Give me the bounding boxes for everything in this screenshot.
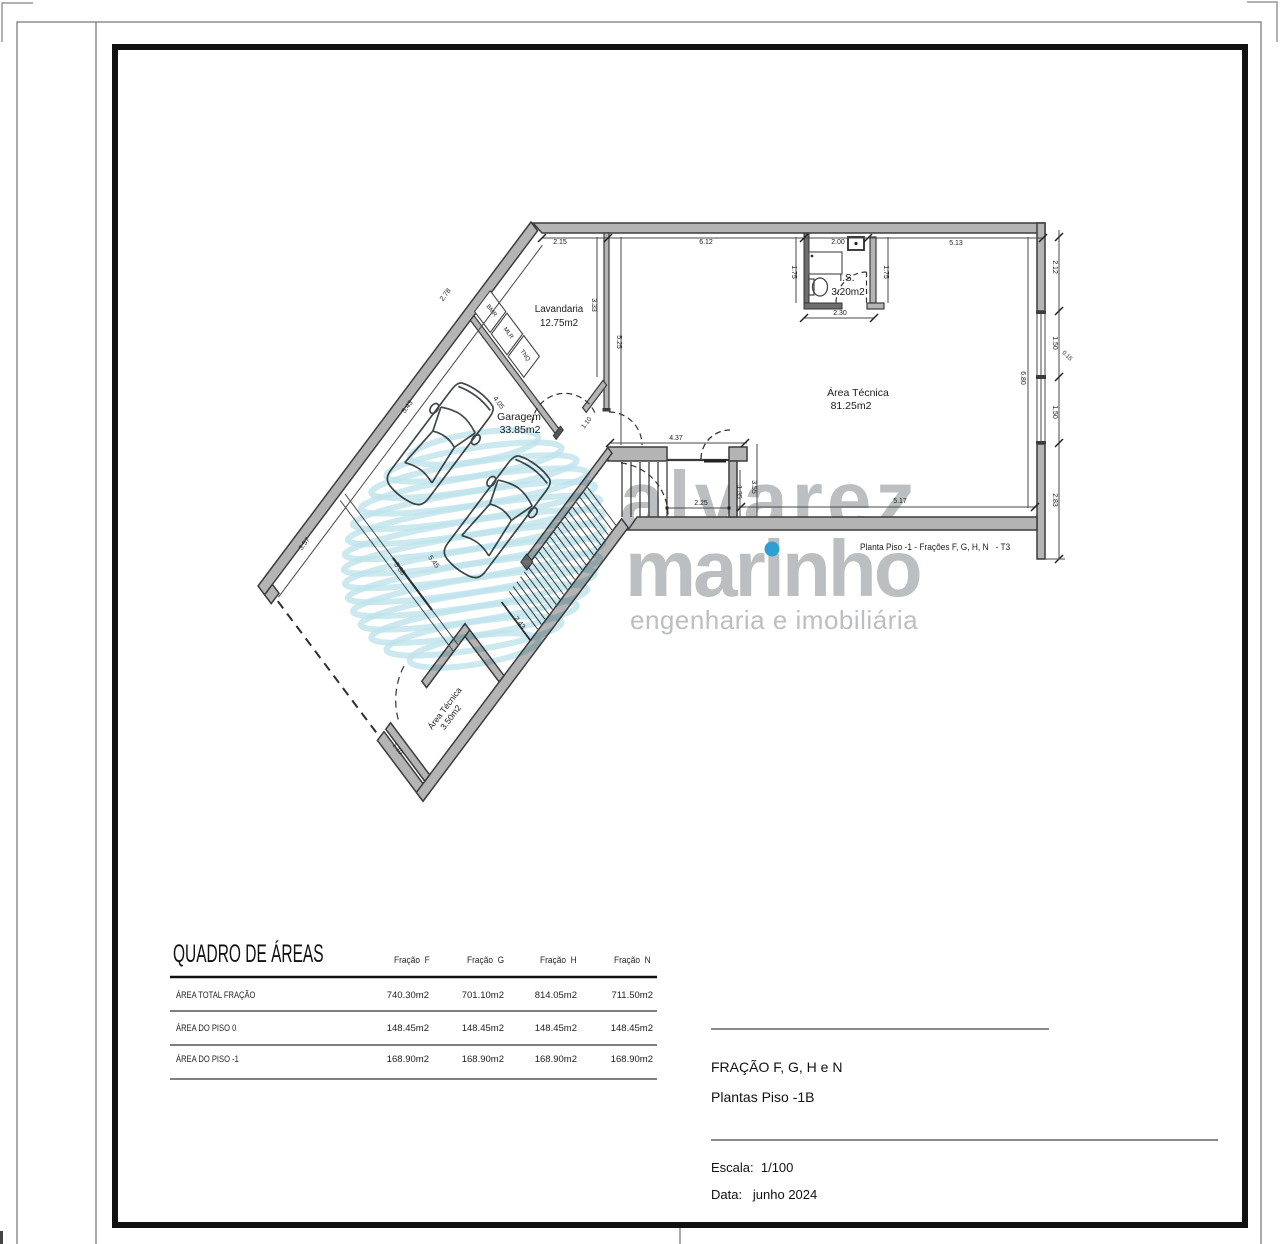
svg-text:2.83: 2.83 [1051, 493, 1058, 507]
svg-text:3.33: 3.33 [590, 298, 597, 312]
svg-text:Fração F: Fração F [394, 955, 430, 966]
svg-text:701.10m2: 701.10m2 [462, 990, 504, 1001]
svg-text:6.12: 6.12 [699, 239, 713, 246]
svg-text:Planta Piso -1 - Frações F, G,: Planta Piso -1 - Frações F, G, H, N - T3 [860, 542, 1010, 553]
svg-text:740.30m2: 740.30m2 [387, 990, 429, 1001]
svg-text:Garagem: Garagem [497, 411, 541, 423]
svg-text:1.50: 1.50 [1051, 336, 1058, 350]
svg-text:Data: junho 2024: Data: junho 2024 [711, 1187, 817, 1202]
svg-text:I.S.: I.S. [839, 273, 854, 284]
svg-text:6.80: 6.80 [1019, 371, 1026, 385]
svg-text:Plantas Piso -1B: Plantas Piso -1B [711, 1089, 815, 1105]
svg-text:148.45m2: 148.45m2 [387, 1023, 429, 1034]
svg-text:ÁREA DO PISO 0: ÁREA DO PISO 0 [176, 1022, 237, 1033]
svg-text:FRAÇÃO F, G, H e N: FRAÇÃO F, G, H e N [711, 1059, 842, 1075]
svg-text:1.50: 1.50 [1051, 405, 1058, 419]
svg-text:12.75m2: 12.75m2 [540, 318, 578, 329]
svg-text:81.25m2: 81.25m2 [831, 400, 872, 412]
svg-text:2.30: 2.30 [833, 310, 847, 317]
svg-text:148.45m2: 148.45m2 [611, 1023, 653, 1034]
svg-text:2.12: 2.12 [1051, 260, 1058, 274]
svg-text:168.90m2: 168.90m2 [462, 1054, 504, 1065]
svg-text:3.20m2: 3.20m2 [831, 287, 865, 298]
svg-text:Fração N: Fração N [614, 955, 651, 966]
svg-text:1.75: 1.75 [790, 265, 797, 279]
svg-text:148.45m2: 148.45m2 [535, 1023, 577, 1034]
svg-text:ÁREA TOTAL FRAÇÃO: ÁREA TOTAL FRAÇÃO [176, 989, 256, 1000]
svg-text:Área Técnica: Área Técnica [827, 386, 889, 399]
svg-text:engenharia e imobiliária: engenharia e imobiliária [630, 605, 918, 635]
svg-text:2.25: 2.25 [694, 500, 708, 507]
svg-text:5.17: 5.17 [893, 498, 907, 505]
svg-text:ÁREA DO PISO -1: ÁREA DO PISO -1 [176, 1053, 239, 1064]
svg-text:1.35: 1.35 [735, 485, 742, 499]
svg-text:2.00: 2.00 [831, 239, 845, 246]
svg-text:5.13: 5.13 [949, 240, 963, 247]
svg-text:814.05m2: 814.05m2 [535, 990, 577, 1001]
svg-text:3.55: 3.55 [750, 480, 757, 494]
svg-text:711.50m2: 711.50m2 [611, 990, 653, 1001]
svg-text:1.75: 1.75 [882, 265, 889, 279]
svg-text:2.15: 2.15 [553, 239, 567, 246]
svg-text:168.90m2: 168.90m2 [611, 1054, 653, 1065]
svg-text:168.90m2: 168.90m2 [387, 1054, 429, 1065]
svg-text:Escala: 1/100: Escala: 1/100 [711, 1160, 793, 1175]
svg-text:marinho: marinho [625, 524, 920, 613]
svg-text:Lavandaria: Lavandaria [535, 304, 584, 315]
svg-text:Fração H: Fração H [540, 955, 577, 966]
svg-text:148.45m2: 148.45m2 [462, 1023, 504, 1034]
svg-text:Fração G: Fração G [467, 955, 504, 966]
svg-text:QUADRO DE ÁREAS: QUADRO DE ÁREAS [173, 940, 324, 968]
svg-text:4.37: 4.37 [669, 435, 683, 442]
svg-text:168.90m2: 168.90m2 [535, 1054, 577, 1065]
svg-text:5.25: 5.25 [615, 335, 622, 349]
